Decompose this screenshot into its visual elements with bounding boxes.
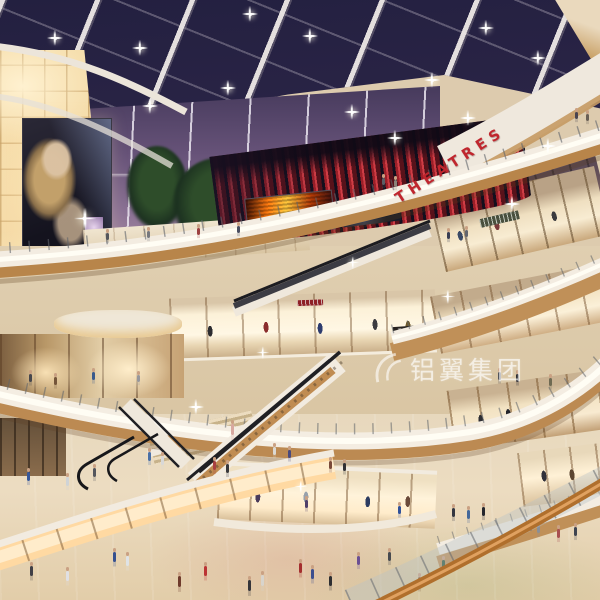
mall-atrium-rendering: TAI TAI: [0, 0, 600, 600]
foreground-glass: [350, 470, 600, 600]
foreground-rail-layer: [0, 0, 600, 600]
